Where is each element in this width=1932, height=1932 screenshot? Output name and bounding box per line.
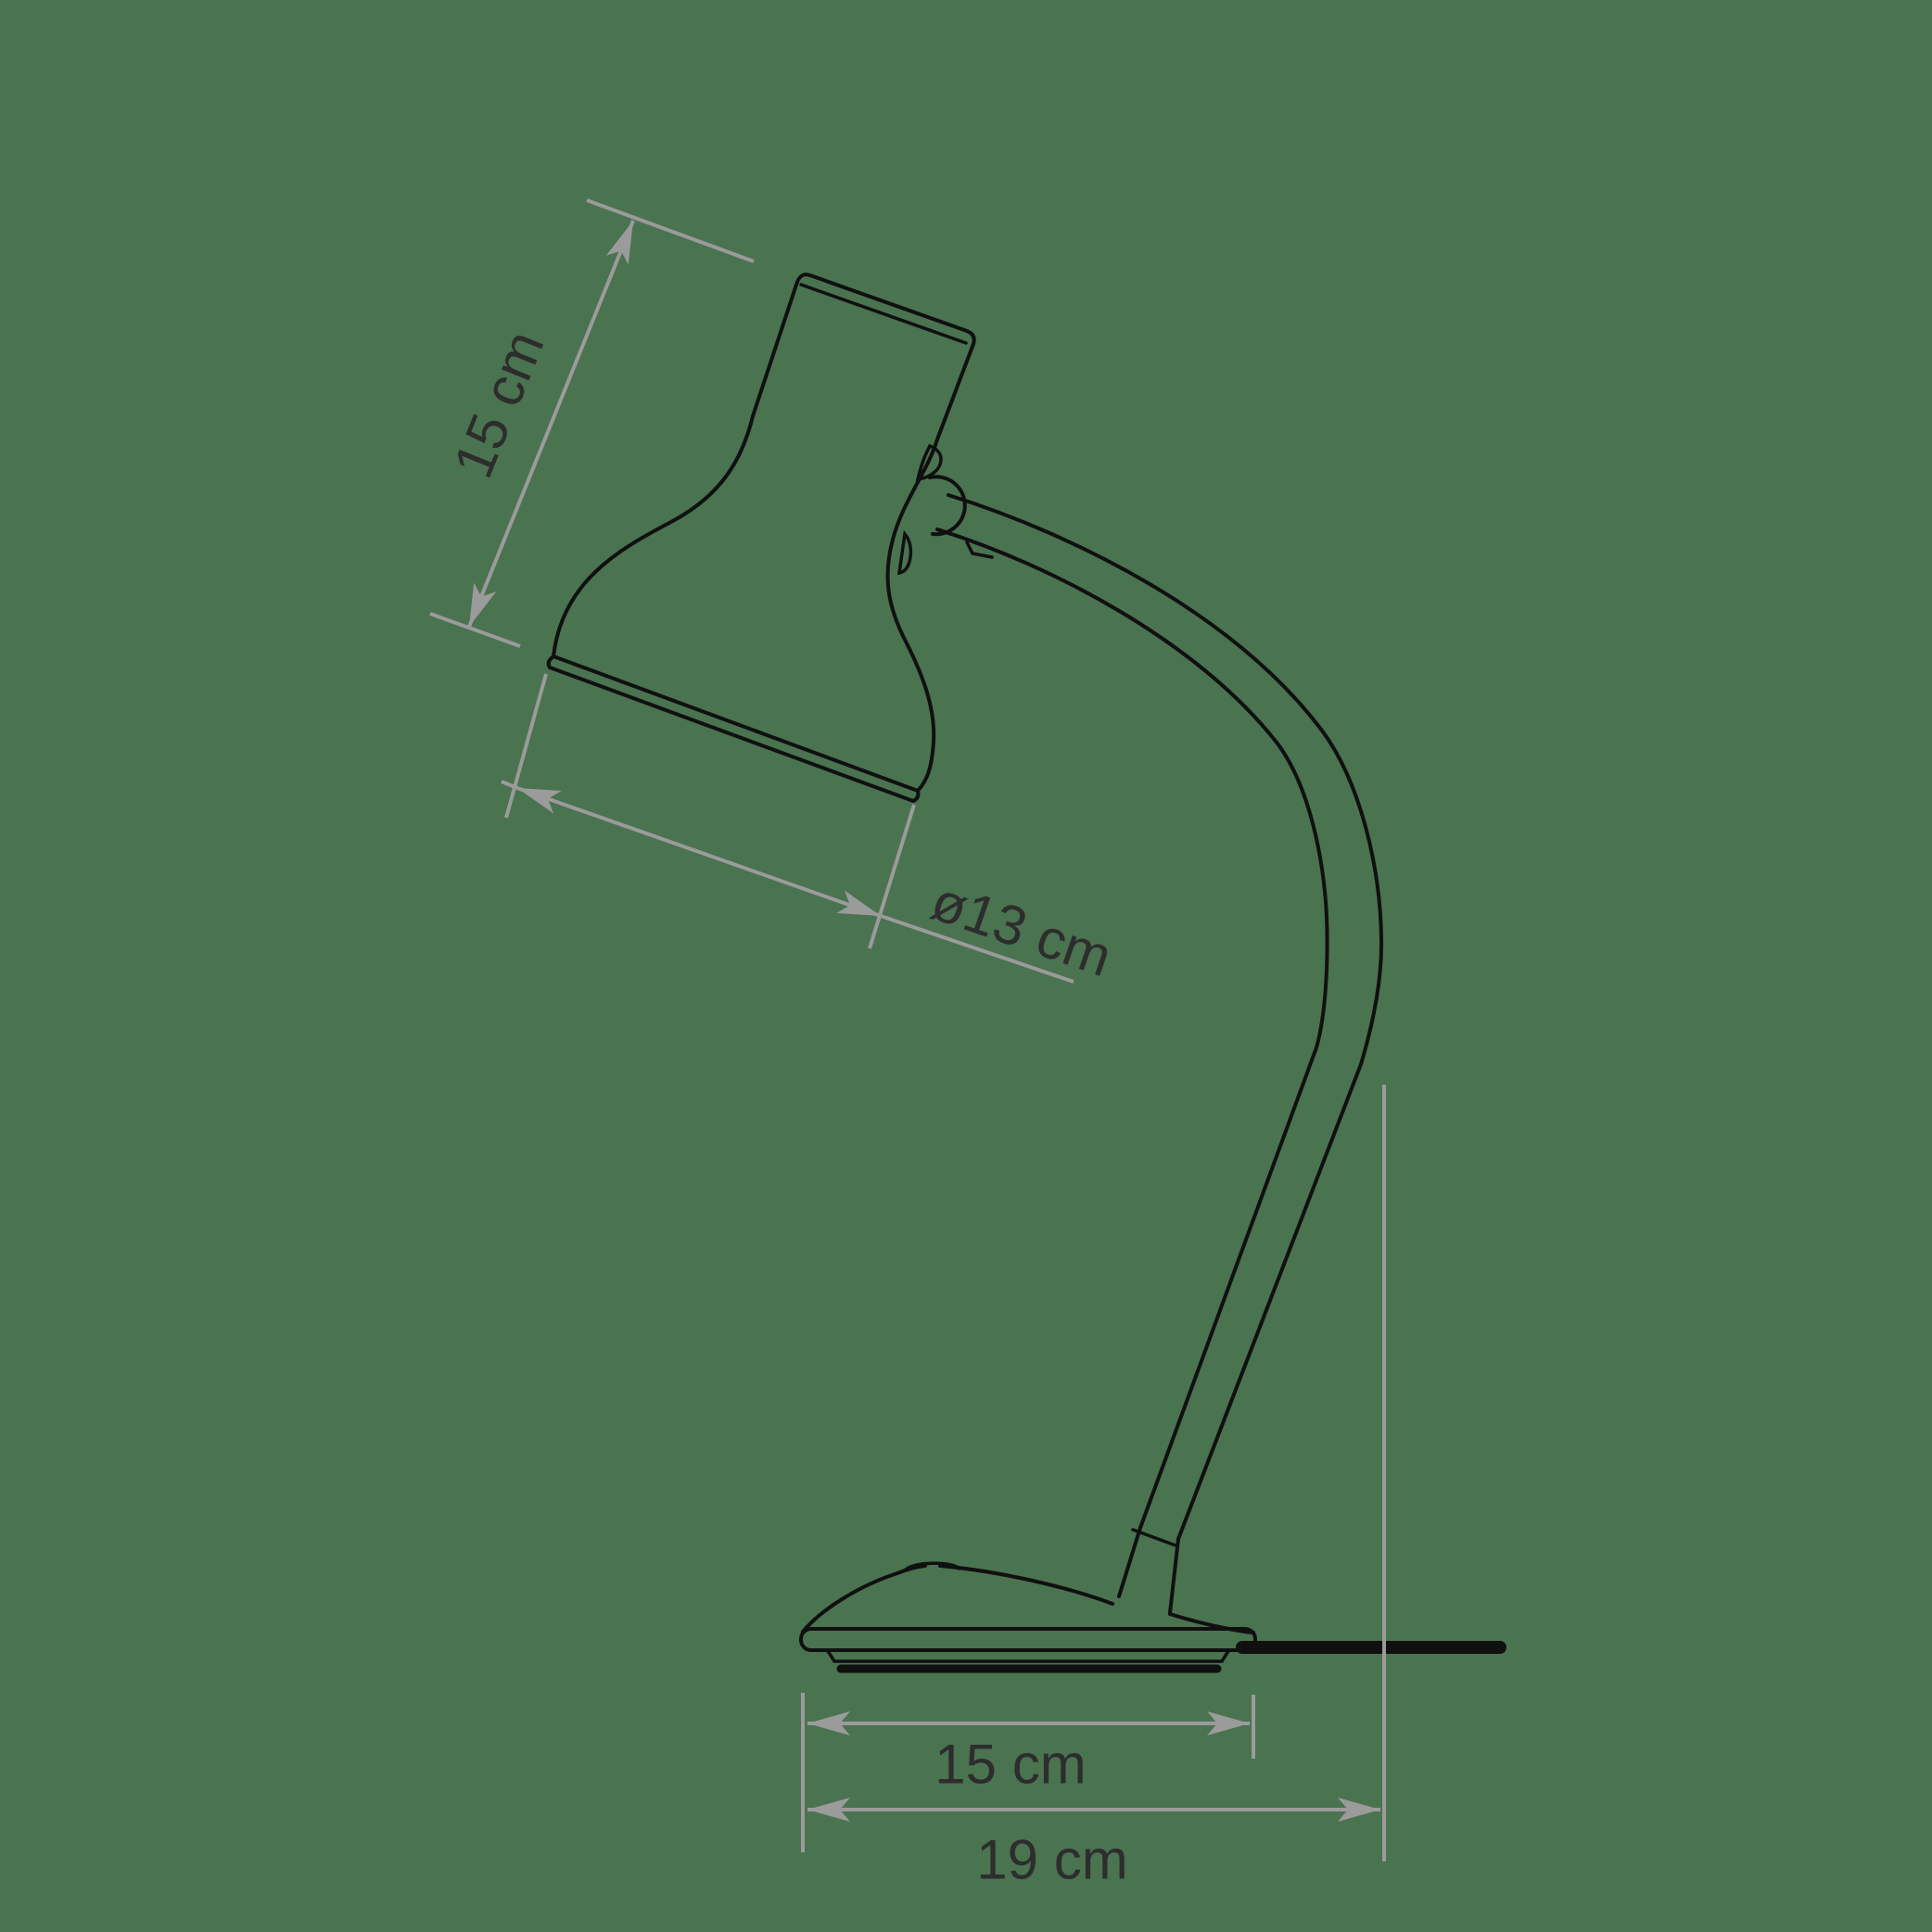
shade-left-flare (553, 416, 753, 656)
arm-outer-line (948, 495, 1381, 1613)
hinge-knuckle (930, 477, 965, 534)
shade-diameter-dimension-line (517, 788, 881, 916)
base-plinth-band (801, 1629, 1255, 1650)
base-inset-layer (828, 1651, 1228, 1661)
base-dome-left (803, 1566, 925, 1632)
shade-height-label: 15 cm (441, 323, 555, 487)
shade-height-extension-top (587, 200, 754, 261)
shade-height-extension-bottom (430, 614, 520, 646)
overall-depth-label: 19 cm (976, 1829, 1127, 1891)
dim-overall-depth: 19 cm (807, 1085, 1384, 1891)
dimensions: 15 cm ø13 cm 15 cm 19 cm (430, 200, 1384, 1891)
shade-hinge (899, 446, 965, 573)
lamp-drawing (549, 274, 1500, 1669)
base-width-label: 15 cm (934, 1734, 1086, 1796)
arm-collar-joint (1133, 1530, 1176, 1545)
dim-shade-height: 15 cm (430, 200, 754, 646)
lamp-dimension-drawing: 15 cm ø13 cm 15 cm 19 cm (0, 0, 1932, 1932)
lamp-base (801, 1563, 1255, 1669)
lamp-arm (937, 495, 1381, 1613)
hinge-lower-tab (899, 534, 910, 573)
arm-inner-line (937, 529, 1328, 1596)
drawing-canvas: 15 cm ø13 cm 15 cm 19 cm (0, 0, 1932, 1932)
shade-top-rim-inner (801, 285, 966, 343)
lamp-shade (549, 274, 974, 801)
shade-opening-rim (549, 656, 919, 801)
base-dome-right (940, 1566, 1112, 1604)
dim-shade-diameter: ø13 cm (502, 674, 1119, 988)
shade-diameter-label: ø13 cm (924, 870, 1120, 988)
